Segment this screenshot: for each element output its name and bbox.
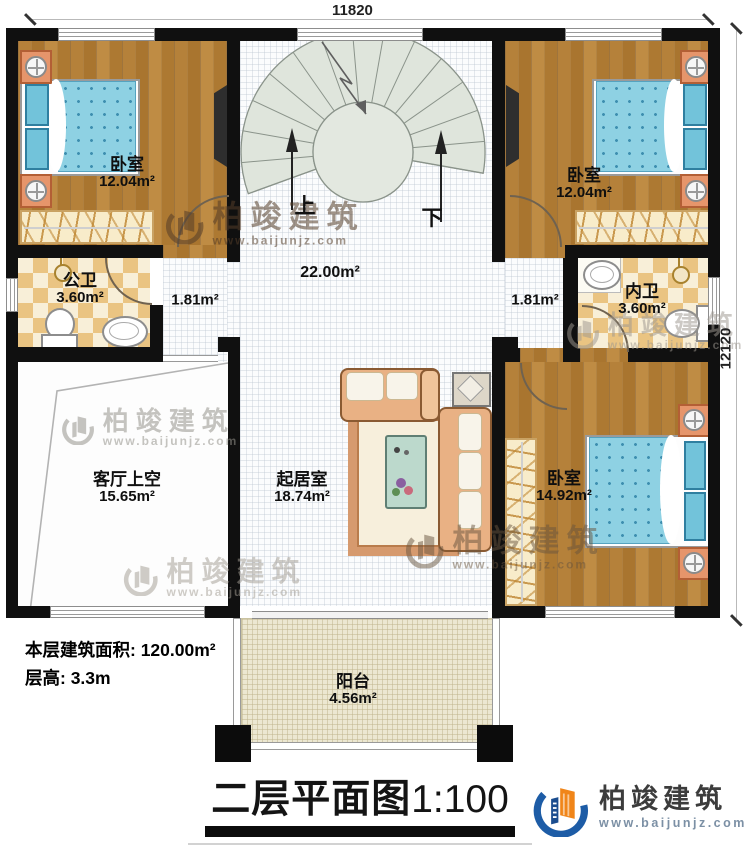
room-area: 1.81m² xyxy=(171,293,219,310)
room-area: 4.56m² xyxy=(329,691,377,708)
dimension-line-right xyxy=(736,30,737,622)
bed-quilt xyxy=(589,437,671,544)
wall-bathroom-right-left xyxy=(563,258,578,362)
pillow xyxy=(25,84,49,126)
room-area: 22.00m² xyxy=(300,264,360,282)
bed-sheet xyxy=(660,435,682,544)
bed-sheet xyxy=(664,79,684,172)
column xyxy=(477,725,513,762)
shower-head-icon xyxy=(672,266,690,284)
room-label-corridor-right: 1.81m² xyxy=(511,293,559,310)
passage-right-floor xyxy=(492,262,505,337)
floor-info: 本层建筑面积: 120.00m² 层高: 3.3m xyxy=(25,636,216,692)
wall-stair-right xyxy=(492,28,505,262)
flower-decor xyxy=(404,486,413,495)
wardrobe xyxy=(575,210,712,244)
window-top-bedroom-tr xyxy=(565,28,662,41)
tv-panel xyxy=(214,85,227,167)
pillow xyxy=(684,492,706,541)
room-area: 18.74m² xyxy=(274,489,330,506)
bed-sheet xyxy=(46,79,66,172)
wardrobe xyxy=(20,210,154,244)
window-bottom-bedroom-br xyxy=(545,606,675,618)
room-label-bathroom-right: 内卫 3.60m² xyxy=(618,282,666,318)
end-table xyxy=(452,372,491,407)
title-underline-bar xyxy=(205,826,515,837)
wardrobe xyxy=(505,438,537,606)
bed-quilt xyxy=(596,81,674,172)
wall-left-upper xyxy=(6,28,18,278)
end-table-top xyxy=(457,375,484,402)
balcony-slider-track xyxy=(252,611,488,619)
wall-bottom-left-1 xyxy=(6,606,50,618)
wall-right-upper xyxy=(708,28,720,277)
toilet xyxy=(664,309,700,338)
room-area: 1.81m² xyxy=(511,293,559,310)
room-name: 内卫 xyxy=(618,282,666,301)
room-name: 起居室 xyxy=(274,470,330,489)
pillow xyxy=(25,128,49,170)
column xyxy=(215,725,251,762)
sink-basin xyxy=(109,322,139,340)
wall-top-2 xyxy=(155,28,297,41)
sofa-cushion xyxy=(346,372,384,401)
wall-bedroom-tr-bottom xyxy=(565,245,708,258)
plan-title-scale: 1:100 xyxy=(411,778,509,821)
room-name: 卧室 xyxy=(99,155,155,174)
dimension-line-top xyxy=(30,19,710,20)
doorway-bedroom-br xyxy=(520,348,565,362)
room-label-hall: 22.00m² xyxy=(300,264,360,282)
tv-panel xyxy=(506,85,519,167)
table-item xyxy=(394,447,400,453)
wall-bedroom-br-left xyxy=(492,352,505,606)
brand-url: www.baijunjz.com xyxy=(599,816,747,830)
wall-bedroom-br-top-2 xyxy=(565,348,580,362)
void-railing xyxy=(163,355,218,362)
sink xyxy=(583,260,621,290)
sofa-cushion xyxy=(458,413,482,451)
floor-plan-canvas: 上 下 xyxy=(0,0,750,856)
wall-stub-left xyxy=(218,337,240,352)
lamp-icon xyxy=(25,180,47,202)
wall-bedroom-tl-bottom xyxy=(18,245,163,258)
pillow xyxy=(683,128,707,170)
sofa-cushion xyxy=(386,372,418,400)
room-area: 3.60m² xyxy=(56,290,104,307)
brand-name: 柏竣建筑 xyxy=(599,786,747,813)
room-label-bedroom-tr: 卧室 12.04m² xyxy=(556,166,612,202)
window-left-bathroom xyxy=(6,278,18,312)
lamp-icon xyxy=(683,552,705,574)
sink-basin xyxy=(590,266,614,283)
room-label-living-room: 起居室 18.74m² xyxy=(274,470,330,506)
room-name: 卧室 xyxy=(536,469,592,488)
lamp-icon xyxy=(685,56,707,78)
room-name: 阳台 xyxy=(329,672,377,691)
flower-decor xyxy=(392,488,400,496)
lamp-icon xyxy=(685,180,707,202)
lamp-icon xyxy=(25,56,47,78)
room-area: 12.04m² xyxy=(99,174,155,191)
window-right-bathroom xyxy=(708,277,720,325)
room-area: 12.04m² xyxy=(556,185,612,202)
nightstand xyxy=(678,547,710,580)
pillow xyxy=(684,441,706,490)
stair-down-label: 下 xyxy=(422,202,443,232)
room-label-bedroom-br: 卧室 14.92m² xyxy=(536,469,592,505)
window-top-stairs xyxy=(297,28,423,41)
pillow xyxy=(683,84,707,126)
brand-logo-icon xyxy=(533,779,591,837)
passage-left-floor xyxy=(227,262,240,337)
sink xyxy=(102,316,148,348)
sofa-cushion xyxy=(458,491,482,529)
wall-bedroom-br-top-3 xyxy=(628,348,708,362)
sofa-cushion xyxy=(458,452,482,490)
title-underline-thin xyxy=(188,843,532,845)
room-label-corridor-left: 1.81m² xyxy=(171,293,219,310)
room-area: 15.65m² xyxy=(93,489,161,506)
wall-bottom-left-2 xyxy=(205,606,240,618)
balcony-rail-bottom xyxy=(233,742,500,750)
room-area: 3.60m² xyxy=(618,301,666,318)
room-area: 14.92m² xyxy=(536,488,592,505)
room-name: 公卫 xyxy=(56,271,104,290)
room-label-bedroom-tl: 卧室 12.04m² xyxy=(99,155,155,191)
brand-logo: 柏竣建筑 www.baijunjz.com xyxy=(533,779,747,837)
room-label-balcony: 阳台 4.56m² xyxy=(329,672,377,708)
plan-title-main: 二层平面图 xyxy=(211,778,411,821)
nightstand xyxy=(20,50,52,84)
dimension-right: 12120 xyxy=(717,328,734,370)
nightstand xyxy=(20,174,52,208)
stair-up-label: 上 xyxy=(295,190,316,220)
window-top-bedroom-tl xyxy=(58,28,155,41)
wall-bathroom-left-bottom xyxy=(6,347,163,362)
wall-bottom-right-1 xyxy=(492,606,545,618)
lamp-icon xyxy=(683,409,705,431)
plan-title: 二层平面图1:100 xyxy=(190,768,530,824)
floor-area-text: 本层建筑面积: 120.00m² xyxy=(25,636,216,664)
floor-height-text: 层高: 3.3m xyxy=(25,664,216,692)
room-name: 客厅上空 xyxy=(93,470,161,489)
coffee-table xyxy=(385,435,427,509)
nightstand xyxy=(678,404,710,437)
wall-stub-right xyxy=(492,337,518,352)
wall-bottom-right-2 xyxy=(675,606,720,618)
dimension-top: 11820 xyxy=(332,2,373,19)
wall-living-void-right xyxy=(228,352,240,606)
table-item xyxy=(404,450,409,455)
room-label-bathroom-left: 公卫 3.60m² xyxy=(56,271,104,307)
room-name: 卧室 xyxy=(556,166,612,185)
window-bottom-left xyxy=(50,606,205,618)
room-label-living-void: 客厅上空 15.65m² xyxy=(93,470,161,506)
sofa-armrest xyxy=(420,369,440,421)
